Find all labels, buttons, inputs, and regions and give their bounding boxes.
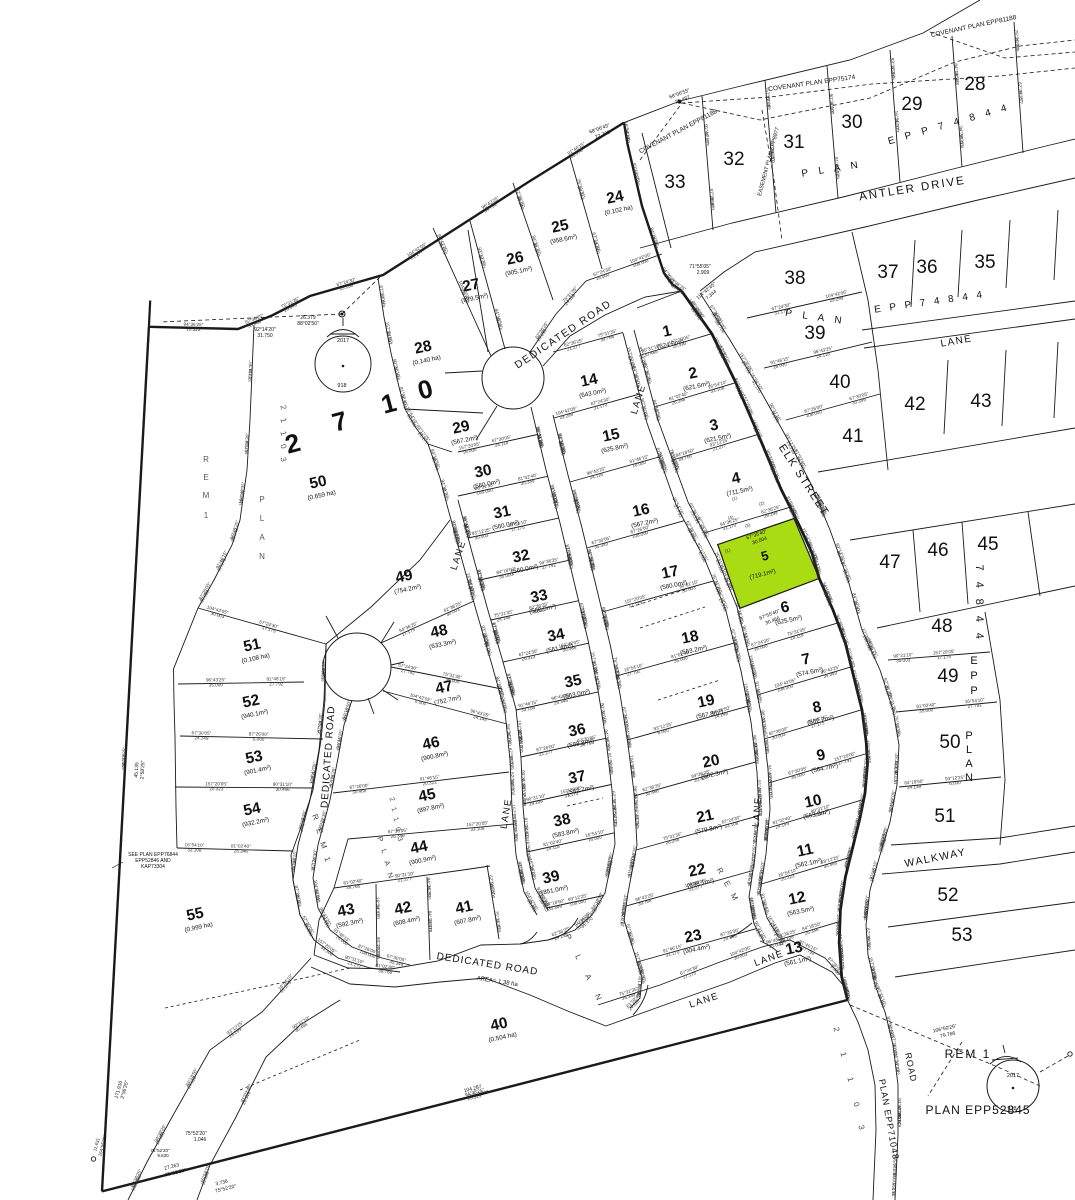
- svg-text:4: 4: [973, 615, 985, 622]
- svg-text:27.792: 27.792: [269, 681, 284, 686]
- svg-text:24.118: 24.118: [427, 919, 433, 933]
- svg-text:20: 20: [701, 751, 721, 771]
- svg-text:N: N: [965, 772, 973, 784]
- svg-text:46: 46: [927, 540, 948, 561]
- svg-text:16.000: 16.000: [244, 440, 250, 455]
- svg-text:20.323: 20.323: [891, 1182, 897, 1197]
- svg-text:M: M: [203, 491, 210, 500]
- svg-text:E: E: [203, 473, 208, 482]
- svg-text:52: 52: [937, 885, 958, 906]
- svg-text:50: 50: [308, 472, 328, 492]
- svg-text:38: 38: [784, 268, 805, 289]
- svg-text:42: 42: [393, 898, 413, 918]
- svg-text:47: 47: [879, 552, 900, 573]
- svg-text:39: 39: [804, 323, 825, 344]
- svg-text:88°02'50": 88°02'50": [297, 321, 319, 327]
- svg-text:35.000: 35.000: [209, 682, 224, 687]
- svg-text:26.346: 26.346: [234, 848, 249, 853]
- svg-text:33.108: 33.108: [838, 943, 844, 958]
- svg-text:12: 12: [787, 888, 807, 908]
- svg-text:20.323: 20.323: [186, 327, 201, 332]
- svg-text:R: R: [203, 455, 209, 464]
- svg-text:20.323: 20.323: [209, 786, 224, 791]
- svg-text:1: 1: [204, 511, 209, 520]
- svg-text:41: 41: [842, 426, 863, 447]
- svg-text:51: 51: [934, 806, 955, 827]
- svg-text:2°58'25": 2°58'25": [140, 760, 147, 779]
- svg-text:50: 50: [939, 732, 960, 753]
- svg-text:6.000: 6.000: [253, 736, 265, 741]
- svg-text:REM 1: REM 1: [945, 1047, 992, 1061]
- svg-text:24.149: 24.149: [194, 735, 209, 740]
- svg-text:30.466: 30.466: [276, 787, 291, 792]
- svg-text:2.909: 2.909: [697, 270, 710, 276]
- svg-text:8: 8: [973, 598, 985, 605]
- svg-text:31.750: 31.750: [257, 333, 273, 339]
- svg-text:26.346: 26.346: [634, 815, 640, 830]
- svg-text:49: 49: [937, 666, 958, 687]
- svg-text:42: 42: [904, 394, 925, 415]
- svg-text:28: 28: [964, 74, 985, 95]
- svg-text:30: 30: [841, 112, 862, 133]
- svg-text:L: L: [260, 514, 265, 523]
- svg-text:32: 32: [511, 546, 531, 566]
- svg-text:48: 48: [931, 616, 952, 637]
- svg-text:40: 40: [489, 1014, 509, 1034]
- svg-text:40: 40: [829, 372, 850, 393]
- svg-text:33: 33: [664, 172, 685, 193]
- svg-text:29: 29: [901, 94, 922, 115]
- svg-text:35: 35: [974, 252, 995, 273]
- svg-text:33.108: 33.108: [187, 847, 202, 852]
- svg-text:30: 30: [473, 461, 493, 481]
- svg-text:1.046: 1.046: [194, 1137, 207, 1143]
- svg-text:2017: 2017: [337, 338, 349, 344]
- svg-text:39.766: 39.766: [1014, 37, 1020, 52]
- svg-text:16.000: 16.000: [426, 885, 432, 900]
- svg-text:P: P: [970, 670, 977, 682]
- svg-text:45: 45: [977, 534, 998, 555]
- svg-text:24.118: 24.118: [768, 785, 774, 799]
- svg-text:17.175: 17.175: [767, 773, 773, 788]
- svg-text:P: P: [970, 685, 977, 697]
- svg-text:E: E: [970, 655, 977, 667]
- svg-text:17: 17: [660, 562, 680, 582]
- svg-text:31.170: 31.170: [375, 905, 380, 920]
- svg-text:KAP73304: KAP73304: [141, 864, 165, 870]
- svg-text:36: 36: [916, 257, 937, 278]
- svg-text:918: 918: [337, 383, 346, 389]
- svg-text:2017: 2017: [1007, 1073, 1019, 1079]
- svg-text:9.630: 9.630: [157, 1153, 169, 1158]
- svg-text:A: A: [965, 758, 973, 770]
- svg-text:31: 31: [783, 132, 804, 153]
- svg-text:17.175: 17.175: [893, 770, 899, 785]
- svg-text:53: 53: [951, 925, 972, 946]
- svg-text:43: 43: [970, 391, 991, 412]
- svg-text:33.108: 33.108: [757, 802, 763, 817]
- svg-text:52: 52: [241, 691, 261, 711]
- svg-text:P: P: [259, 495, 264, 504]
- svg-text:33.108: 33.108: [612, 813, 618, 828]
- svg-text:35.349: 35.349: [521, 792, 527, 807]
- svg-text:108.000: 108.000: [510, 779, 516, 796]
- svg-text:7: 7: [973, 564, 985, 571]
- svg-text:4: 4: [973, 581, 985, 588]
- svg-text:4: 4: [973, 632, 985, 639]
- svg-text:N: N: [259, 552, 265, 561]
- svg-text:32: 32: [723, 149, 744, 170]
- svg-text:A: A: [259, 533, 265, 542]
- svg-text:108.000: 108.000: [121, 753, 127, 770]
- svg-text:37: 37: [877, 262, 898, 283]
- svg-text:P: P: [965, 730, 972, 742]
- svg-text:35.000: 35.000: [321, 667, 327, 682]
- svg-text:21.277: 21.277: [1018, 90, 1024, 105]
- svg-text:26.346: 26.346: [633, 794, 639, 809]
- svg-text:PLAN EPP52845: PLAN EPP52845: [925, 1103, 1030, 1117]
- svg-text:24.118: 24.118: [248, 368, 254, 382]
- svg-text:21.277: 21.277: [611, 799, 617, 814]
- svg-text:24.149: 24.149: [897, 1113, 902, 1127]
- svg-text:37: 37: [567, 767, 587, 787]
- svg-text:35.349: 35.349: [866, 936, 872, 951]
- svg-text:L: L: [966, 744, 972, 756]
- svg-text:6.000: 6.000: [829, 103, 835, 115]
